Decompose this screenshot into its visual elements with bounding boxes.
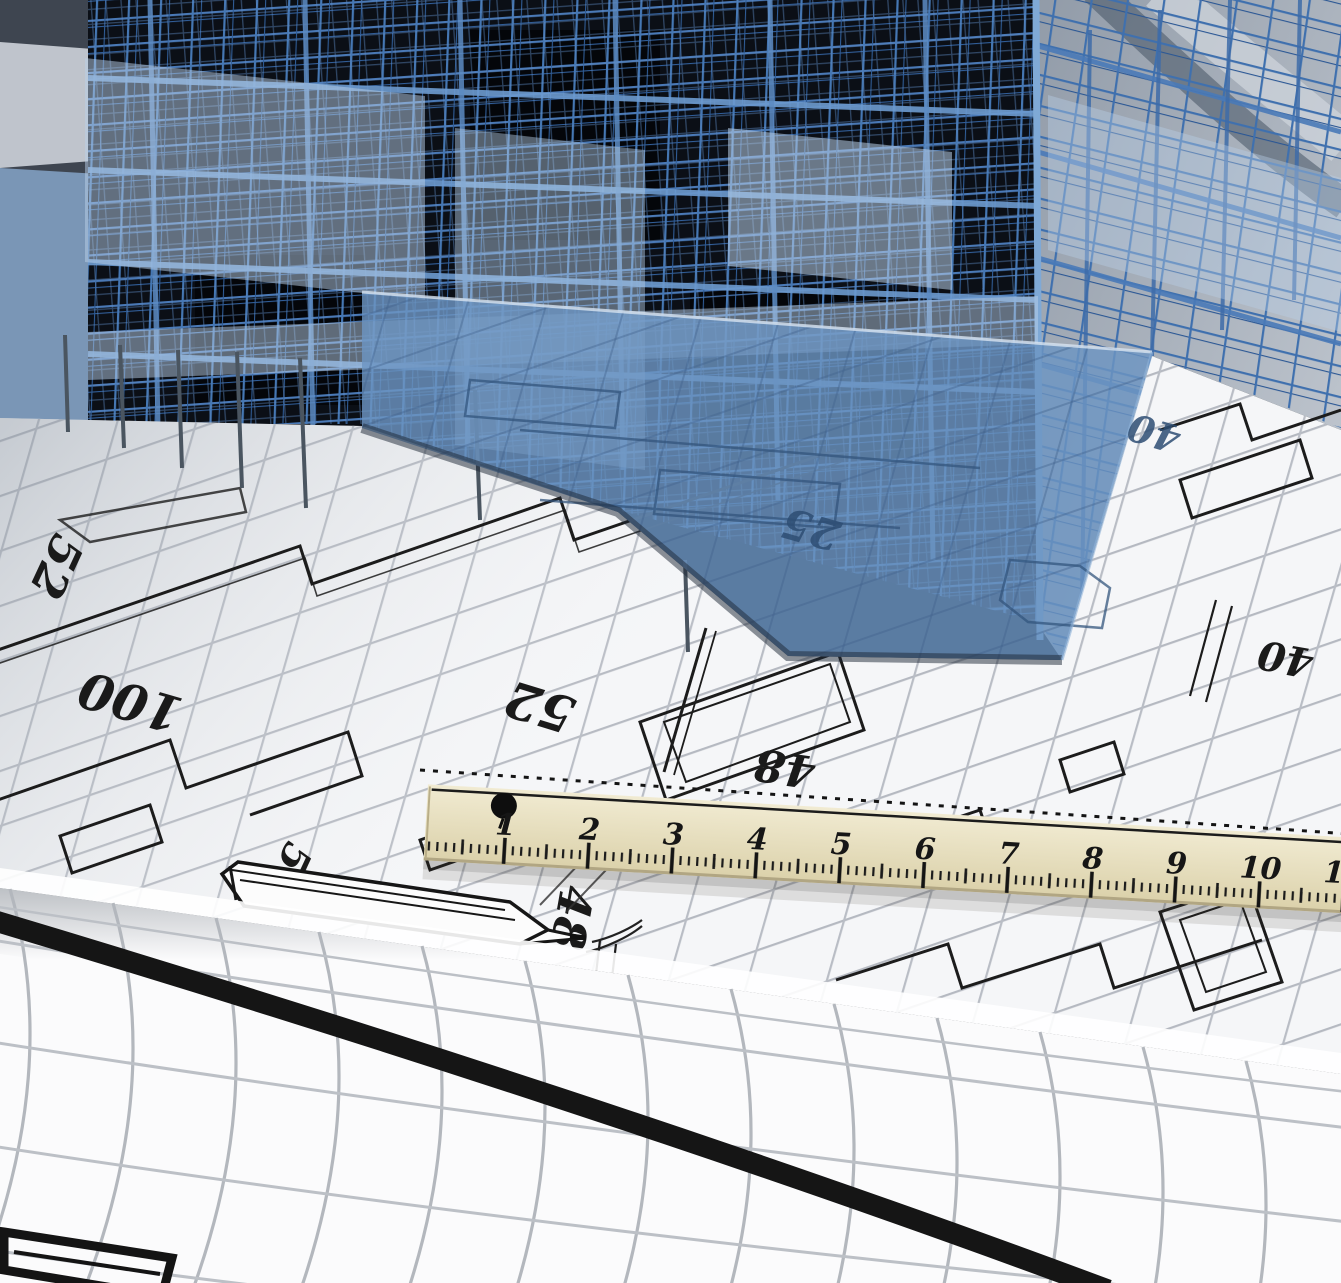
ruler-number: 3 [662, 817, 685, 853]
pencil-lead [570, 936, 586, 938]
dimension-label: 48 [751, 738, 819, 797]
dimension-label: 40 [1254, 630, 1317, 686]
ruler-number: 7 [997, 836, 1020, 872]
ruler-number: 9 [1165, 846, 1188, 882]
ruler-number: 6 [914, 831, 937, 867]
dimension-label: 48 [540, 882, 604, 954]
ruler-number: 10 [1239, 850, 1283, 887]
ruler-number: 1 [494, 807, 517, 843]
blueprint-scene: 52 100 52 48 40 5 48 25 40 [0, 0, 1341, 1283]
ruler-number: 4 [746, 822, 769, 858]
ruler-number: 11 [1323, 855, 1341, 892]
ruler-number: 8 [1080, 841, 1104, 877]
ruler-number: 2 [577, 812, 601, 848]
ruler-number: 5 [830, 827, 853, 863]
